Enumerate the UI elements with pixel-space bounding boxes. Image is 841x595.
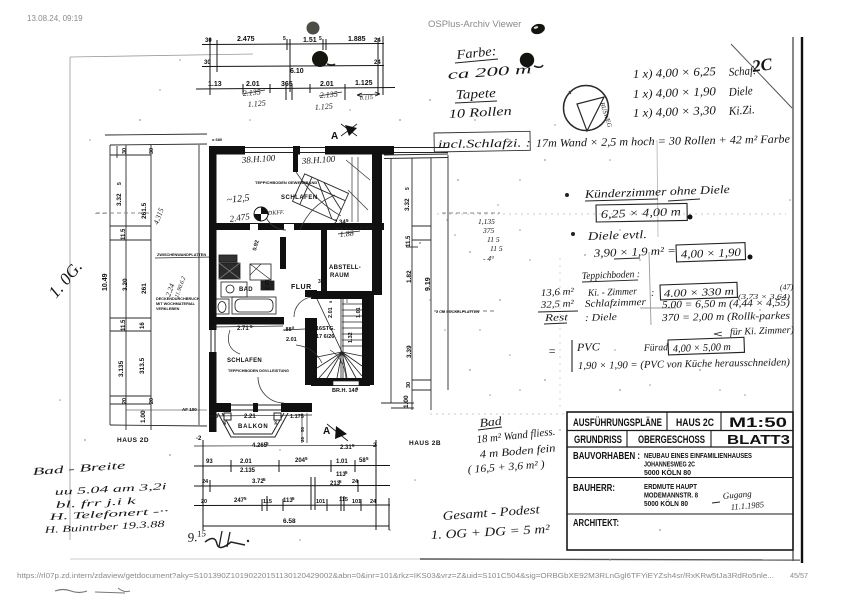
svg-text:1.00: 1.00: [140, 410, 147, 423]
svg-text:incl.Schlafzi. :: incl.Schlafzi. :: [438, 137, 531, 151]
svg-text:11.5: 11.5: [121, 228, 127, 240]
svg-text:HAUS 2C: HAUS 2C: [676, 417, 714, 429]
svg-text:Schlafzimmer: Schlafzimmer: [585, 297, 646, 310]
svg-text:5: 5: [319, 36, 322, 42]
svg-text:1 x) 4,00 × 1,90: 1 x) 4,00 × 1,90: [633, 84, 716, 101]
svg-text:1.13: 1.13: [208, 81, 222, 88]
svg-text:375: 375: [482, 226, 495, 235]
svg-text:24: 24: [374, 38, 381, 44]
svg-text:SCHLAFEN: SCHLAFEN: [227, 358, 262, 364]
svg-text:A: A: [331, 131, 338, 142]
svg-text:370 = 2,00 m (Rollk-parkes: 370 = 2,00 m (Rollk-parkes: [661, 311, 790, 324]
svg-text:AUSFÜHRUNGSPLÄNE: AUSFÜHRUNGSPLÄNE: [573, 416, 662, 429]
svg-text:3.39: 3.39: [406, 345, 413, 358]
svg-text:3.135: 3.135: [118, 360, 125, 377]
svg-text:VERKLEBEN: VERKLEBEN: [156, 307, 180, 311]
svg-text:6.10: 6.10: [290, 68, 304, 75]
svg-text:2.135: 2.135: [240, 468, 256, 474]
svg-text:20: 20: [300, 436, 305, 442]
svg-text:2.01: 2.01: [320, 81, 334, 88]
svg-text:24: 24: [374, 60, 381, 66]
svg-text:115: 115: [339, 497, 348, 503]
svg-text:Diele evtl.: Diele evtl.: [586, 229, 647, 243]
svg-text:HAUS 2B: HAUS 2B: [409, 440, 441, 447]
svg-text::: :: [651, 288, 654, 299]
svg-text:Fürad: Fürad: [643, 342, 669, 354]
svg-text:1.125: 1.125: [247, 98, 266, 109]
svg-text:OBERGESCHOSS: OBERGESCHOSS: [638, 434, 705, 446]
svg-text:DKFF.: DKFF.: [267, 210, 285, 217]
svg-text:2.34: 2.34: [334, 220, 346, 226]
svg-text:73: 73: [212, 414, 218, 420]
svg-text:1.82: 1.82: [406, 270, 413, 283]
svg-text:101: 101: [352, 499, 361, 505]
svg-text:BR.H. 140: BR.H. 140: [332, 388, 358, 394]
svg-text:261: 261: [141, 283, 148, 294]
svg-text:-2: -2: [196, 436, 202, 442]
svg-text:32,5 m²: 32,5 m²: [539, 298, 575, 311]
svg-text:3.32: 3.32: [404, 198, 411, 211]
svg-text:13.08.24, 09:19: 13.08.24, 09:19: [27, 14, 83, 23]
svg-text:17 6/26: 17 6/26: [316, 334, 334, 340]
svg-text:2.135: 2.135: [242, 87, 261, 98]
svg-text:SCHLAFEN: SCHLAFEN: [281, 195, 318, 201]
svg-text:FLUR: FLUR: [291, 284, 312, 291]
svg-text:Schaf.: Schaf.: [728, 63, 756, 79]
svg-text:1.01: 1.01: [356, 307, 362, 318]
svg-text:16: 16: [140, 322, 146, 329]
svg-text:1 x) 4,00 × 3,30: 1 x) 4,00 × 3,30: [633, 103, 716, 120]
svg-text:- 4°: - 4°: [483, 254, 494, 263]
svg-text:30: 30: [205, 38, 212, 44]
svg-text:2.135: 2.135: [319, 89, 338, 100]
svg-text:Tapete: Tapete: [455, 85, 496, 102]
svg-text:https://rl07p.zd.intern/zdavie: https://rl07p.zd.intern/zdaview/getdocum…: [17, 571, 774, 580]
svg-text:1.00: 1.00: [403, 395, 410, 408]
svg-text:Ki.Zi.: Ki.Zi.: [727, 102, 755, 118]
svg-text:20: 20: [149, 398, 155, 404]
svg-text:3.32: 3.32: [116, 193, 123, 206]
svg-text:261.5: 261.5: [141, 202, 148, 219]
svg-text:20: 20: [122, 398, 128, 404]
svg-text:Rest: Rest: [543, 312, 568, 324]
svg-text:30: 30: [273, 420, 278, 425]
svg-text:30: 30: [204, 60, 211, 66]
svg-text:PVC: PVC: [576, 341, 601, 354]
svg-text:24: 24: [370, 499, 377, 505]
svg-text:45/57: 45/57: [790, 571, 808, 580]
svg-text:20: 20: [201, 499, 207, 505]
svg-text:ZWISCHENWANDPLATTEN: ZWISCHENWANDPLATTEN: [157, 253, 206, 257]
svg-text:1,135: 1,135: [478, 217, 495, 226]
svg-text:A: A: [323, 426, 330, 437]
svg-text:5.00 = 6,50 m (4,44 × 4,55): 5.00 = 6,50 m (4,44 × 4,55): [662, 298, 791, 311]
svg-text:2.475: 2.475: [237, 36, 255, 43]
svg-text:3.20: 3.20: [122, 278, 129, 291]
svg-text:=: =: [548, 344, 556, 358]
svg-text:2.01: 2.01: [328, 307, 334, 318]
svg-text:4,00 × 1,90: 4,00 × 1,90: [681, 247, 742, 261]
svg-text:313.5: 313.5: [139, 357, 146, 374]
svg-text:16STG.: 16STG.: [316, 326, 335, 332]
svg-text:2.01: 2.01: [286, 337, 297, 343]
svg-text:375: 375: [318, 279, 327, 285]
svg-text:2.01: 2.01: [240, 459, 252, 465]
svg-text:(47): (47): [780, 282, 794, 292]
svg-text:1.01: 1.01: [336, 459, 348, 465]
svg-text:5000 KÖLN 80: 5000 KÖLN 80: [644, 468, 691, 477]
svg-text:0.115: 0.115: [360, 95, 374, 102]
svg-text:30: 30: [149, 148, 155, 154]
svg-text:101: 101: [316, 499, 325, 505]
svg-text:M1:50: M1:50: [729, 415, 787, 430]
svg-text:BALKON: BALKON: [238, 424, 268, 430]
svg-text:11 5: 11 5: [490, 244, 503, 253]
svg-text:5: 5: [283, 36, 286, 42]
svg-text:93: 93: [206, 459, 213, 465]
svg-text:ARCHITEKT:: ARCHITEKT:: [573, 518, 619, 529]
svg-text:GRUNDRISS: GRUNDRISS: [574, 434, 622, 446]
svg-text:MIT WOCHMATERIAL: MIT WOCHMATERIAL: [156, 302, 196, 306]
svg-text:BAUVORHABEN :: BAUVORHABEN :: [573, 451, 640, 462]
svg-text:2.01: 2.01: [265, 279, 271, 290]
svg-text:1.885: 1.885: [348, 36, 366, 43]
svg-text:BAUHERR:: BAUHERR:: [573, 483, 615, 494]
svg-text:30: 30: [222, 420, 227, 425]
svg-text:365: 365: [281, 81, 293, 88]
svg-text:OSPlus-Archiv Viewer: OSPlus-Archiv Viewer: [428, 19, 521, 30]
svg-text:2.21: 2.21: [244, 414, 256, 420]
svg-text:1.51: 1.51: [303, 37, 317, 44]
svg-text:24: 24: [202, 479, 209, 485]
svg-text:11 5: 11 5: [487, 235, 500, 244]
svg-text:1 x) 4,00 × 6,25: 1 x) 4,00 × 6,25: [633, 64, 716, 81]
svg-text:11.5: 11.5: [406, 235, 412, 247]
svg-text:30: 30: [122, 148, 128, 154]
svg-text:TEPPICHBODEN GEWEBEBAND: TEPPICHBODEN GEWEBEBAND: [255, 180, 317, 185]
svg-text:10.49: 10.49: [102, 273, 109, 291]
svg-text:1.125: 1.125: [314, 101, 333, 112]
svg-text:Diele: Diele: [727, 83, 753, 99]
svg-text:11.5: 11.5: [121, 319, 127, 331]
svg-text:1.32: 1.32: [348, 332, 354, 343]
svg-text:24: 24: [352, 479, 359, 485]
svg-text:9.19: 9.19: [425, 277, 432, 291]
svg-text:13,6 m²: 13,6 m²: [541, 286, 576, 299]
svg-text:AF 100: AF 100: [182, 407, 197, 412]
svg-text:für Ki. Zimmer): für Ki. Zimmer): [730, 325, 795, 338]
svg-text:30: 30: [406, 382, 412, 388]
svg-text:HAUS 2D: HAUS 2D: [117, 437, 149, 444]
svg-text:1.125: 1.125: [355, 80, 373, 87]
svg-text:50: 50: [300, 426, 305, 432]
svg-text:RAUM: RAUM: [330, 273, 349, 279]
svg-text:2 CM SOCKELPLATTEN: 2 CM SOCKELPLATTEN: [436, 310, 479, 314]
svg-text:5: 5: [117, 182, 123, 185]
svg-text:BLATT3: BLATT3: [727, 433, 790, 447]
svg-text:5: 5: [405, 187, 411, 190]
svg-text:TEPPICHBODEN DGVLLEISTUNG: TEPPICHBODEN DGVLLEISTUNG: [228, 369, 289, 373]
svg-text:o 680: o 680: [212, 137, 223, 142]
svg-text:5000 KÖLN 80: 5000 KÖLN 80: [644, 499, 688, 508]
svg-text:6.58: 6.58: [283, 518, 296, 525]
svg-text:115: 115: [263, 499, 272, 505]
svg-text:: Diele: : Diele: [585, 312, 618, 324]
svg-text:BAD: BAD: [239, 287, 253, 293]
svg-text:ABSTELL-: ABSTELL-: [329, 265, 361, 271]
